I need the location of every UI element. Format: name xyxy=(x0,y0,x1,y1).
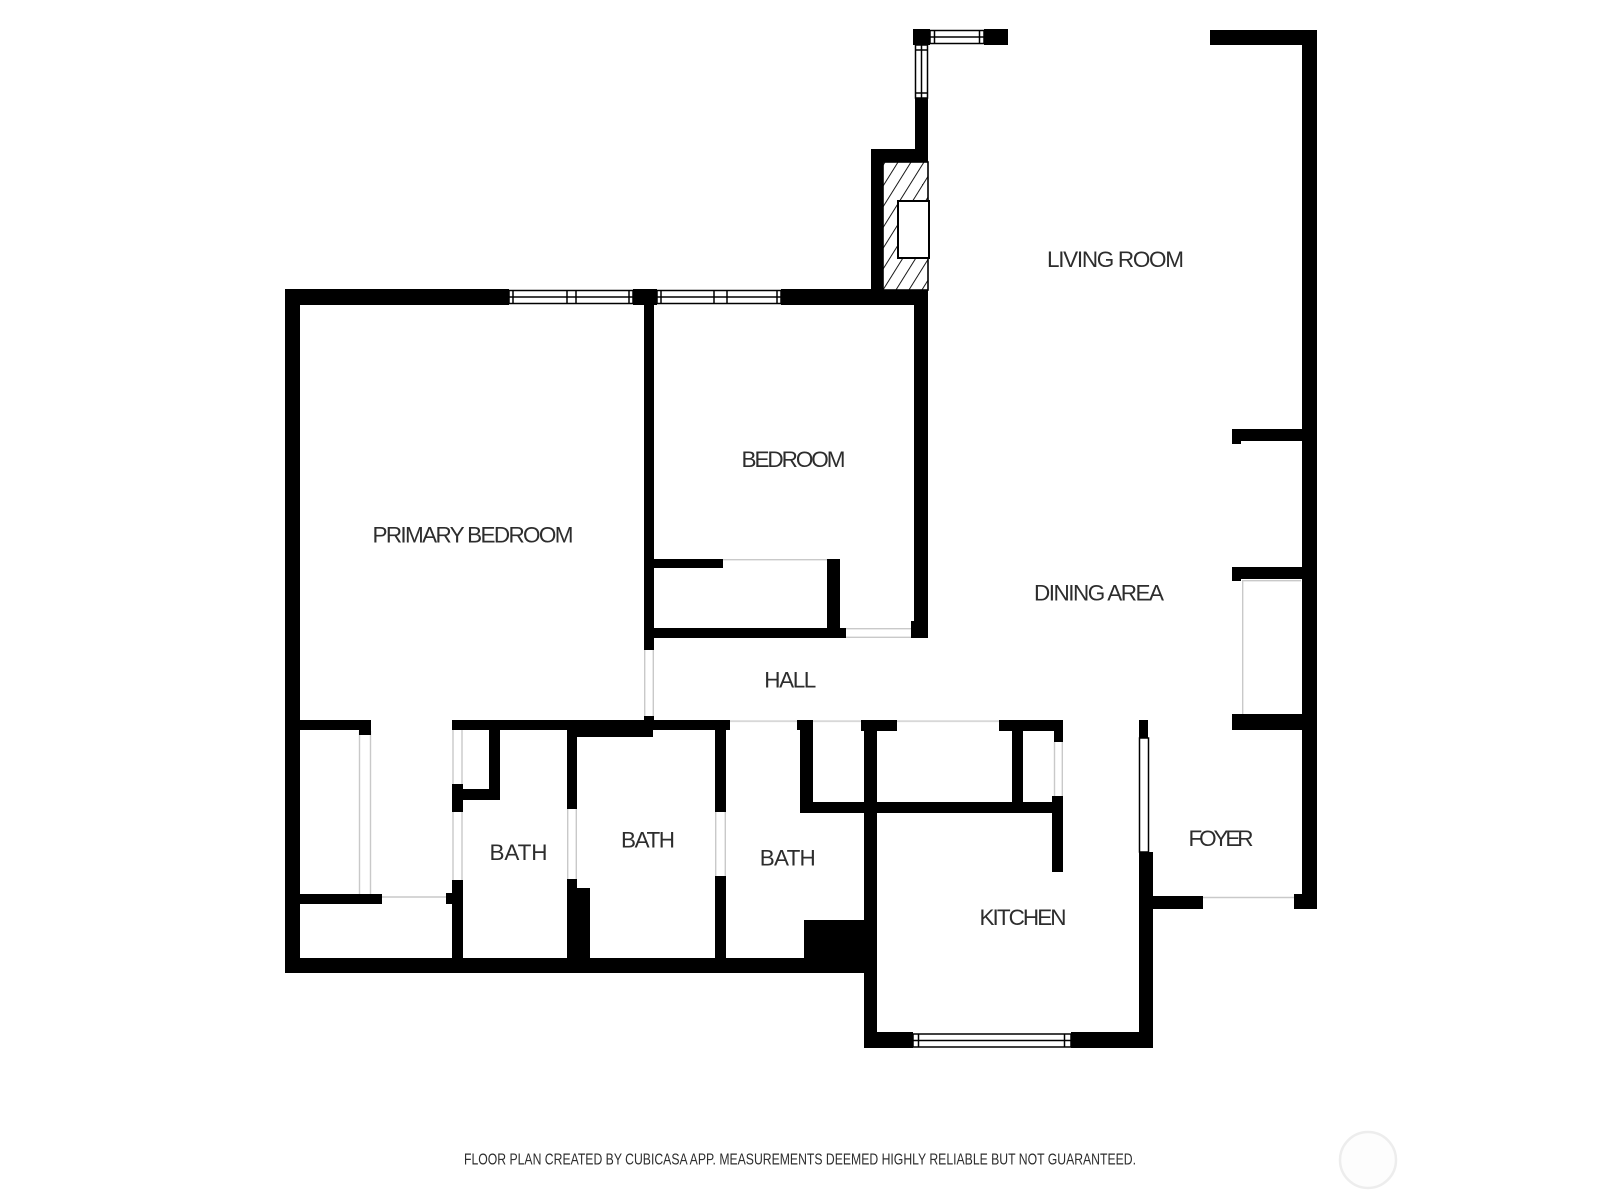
svg-text:DINING AREA: DINING AREA xyxy=(1034,581,1164,606)
svg-text:BATH: BATH xyxy=(621,828,675,853)
svg-text:PRIMARY BEDROOM: PRIMARY BEDROOM xyxy=(373,522,574,547)
svg-text:BATH: BATH xyxy=(490,840,548,865)
svg-text:BATH: BATH xyxy=(760,846,816,871)
svg-text:FLOOR PLAN CREATED BY CUBICASA: FLOOR PLAN CREATED BY CUBICASA APP. MEAS… xyxy=(464,1152,1136,1169)
svg-text:LIVING ROOM: LIVING ROOM xyxy=(1047,247,1184,272)
svg-text:FOYER: FOYER xyxy=(1189,826,1254,851)
svg-text:KITCHEN: KITCHEN xyxy=(980,905,1067,930)
svg-text:BEDROOM: BEDROOM xyxy=(742,447,846,472)
svg-text:HALL: HALL xyxy=(764,667,816,692)
